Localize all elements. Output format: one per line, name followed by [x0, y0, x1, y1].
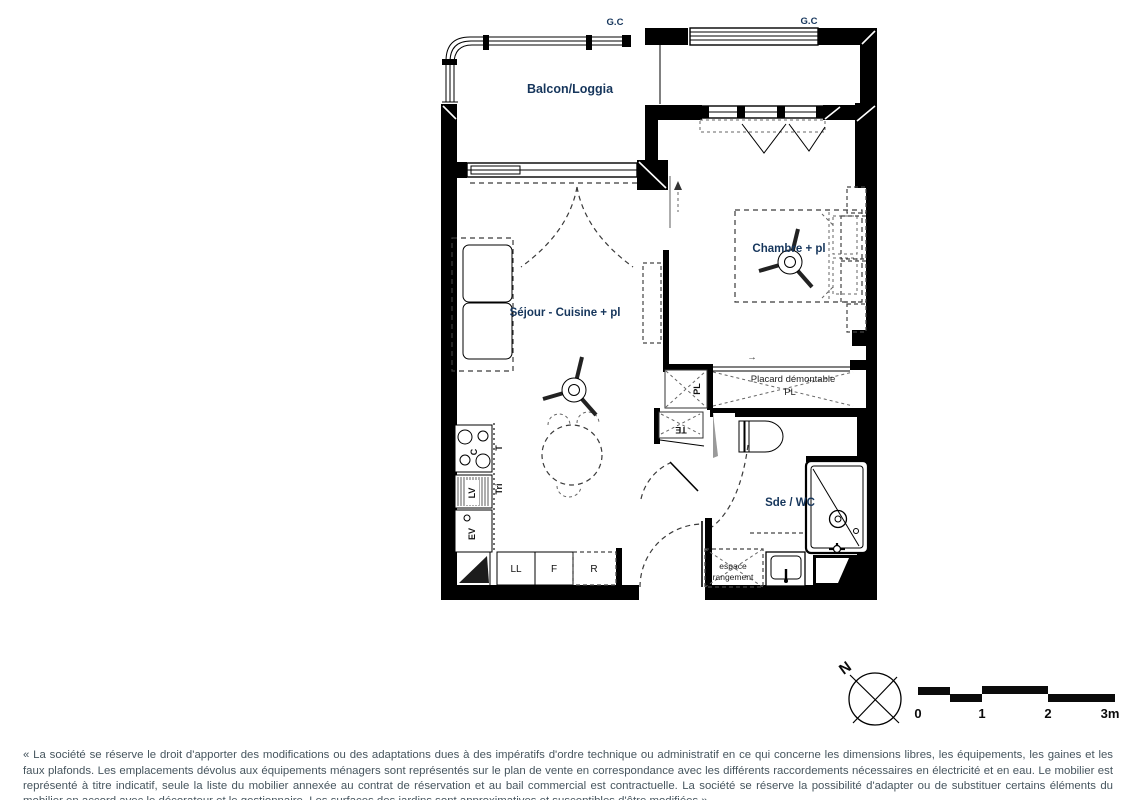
sofa [452, 238, 513, 371]
scale-tick-0: 0 [914, 706, 921, 721]
dishwasher-label: LV [467, 488, 477, 499]
technical-duct [713, 413, 735, 460]
storage-space-label-2: rangement [713, 572, 754, 582]
bedroom-ceiling-fan [759, 229, 812, 287]
bathroom-corner-block [813, 555, 868, 586]
entry-hall [640, 370, 735, 587]
legal-disclaimer: « La société se réserve le droit d'appor… [23, 748, 1113, 800]
fridge-label: F [551, 564, 557, 575]
tv-stand [643, 263, 661, 343]
storage-cabinet-label: R [590, 564, 597, 575]
bedroom-wardrobe [841, 187, 866, 332]
north-label: N [836, 658, 855, 678]
kitchen [452, 423, 616, 586]
storage-space-label-1: espace [719, 561, 747, 571]
scale-tick-3m: 3m [1101, 706, 1120, 721]
washbasin [766, 552, 805, 586]
electrical-panel-label: TE [675, 425, 687, 435]
balcony-label: Balcon/Loggia [527, 82, 614, 96]
compass: N [836, 658, 901, 725]
floor-plan-drawing: N 0 1 2 3m G.C G.C Balcon/Loggia Chambre… [0, 0, 1133, 735]
cooktop-label: C [469, 448, 479, 455]
front-door [640, 521, 702, 587]
living-window [467, 163, 637, 267]
bedroom-label: Chambre + pl [752, 243, 825, 255]
scale-tick-1: 1 [978, 706, 985, 721]
washing-machine-label: LL [510, 564, 522, 575]
tri-label: Tri [494, 483, 504, 494]
gc-label-right: G.C [801, 16, 818, 27]
bathroom-label: Sde / WC [765, 497, 815, 509]
gc-label-left: G.C [607, 17, 624, 28]
removable-closet [712, 367, 853, 406]
dining-table [542, 412, 602, 497]
kitchen-corner-block [452, 552, 490, 586]
toilet [739, 421, 783, 452]
hall-closet-label: PL [692, 383, 702, 395]
living-label: Séjour - Cuisine + pl [510, 307, 621, 319]
floor-plan-page: N 0 1 2 3m G.C G.C Balcon/Loggia Chambre… [0, 0, 1133, 800]
slide-arrow-right: → [747, 352, 757, 363]
removable-closet-label: Placard démontable [751, 374, 836, 385]
living-ceiling-fan [543, 357, 596, 415]
flow-arrow-up [670, 176, 682, 228]
shower [806, 461, 868, 554]
room-labels: G.C G.C Balcon/Loggia Chambre + pl Séjou… [467, 16, 835, 582]
scale-bar: 0 1 2 3m [914, 686, 1119, 721]
sink-label: EV [467, 528, 477, 540]
scale-tick-2: 2 [1044, 706, 1051, 721]
slide-arrow-left: ← [805, 374, 815, 385]
worktop-label: T [494, 445, 504, 451]
hall-door [641, 462, 698, 499]
bedroom-window [700, 106, 825, 153]
removable-closet-pl-label: PL [784, 387, 796, 398]
